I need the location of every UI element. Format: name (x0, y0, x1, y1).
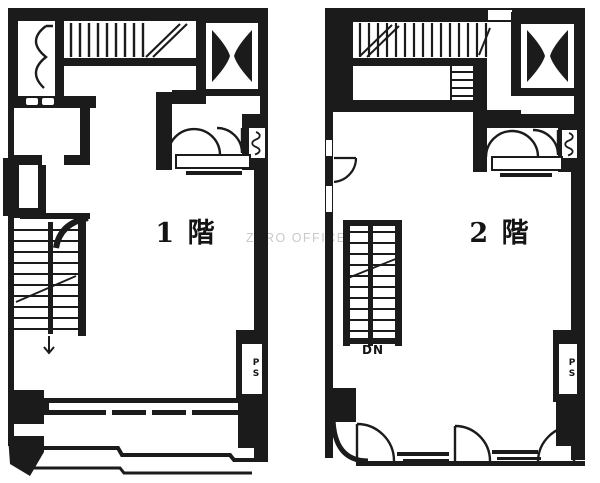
top-staircase-icon (353, 23, 490, 104)
elevator-hall (521, 96, 574, 114)
elevator-icon (511, 12, 585, 96)
pipe-space-label-floor-2: PS (559, 347, 577, 391)
side-door-arc-icon (334, 158, 356, 182)
mid-staircase-icon (343, 220, 402, 346)
elevator-hall (206, 96, 260, 114)
floor-1-label: 1 階 (144, 211, 228, 250)
shaft-symbol-box (249, 128, 265, 158)
floorplan-floor-2 (325, 8, 585, 466)
watermark-text: ZERO OFFICE (246, 231, 347, 245)
bottom-structure (8, 390, 268, 473)
floor-2-label: 2 階 (458, 211, 542, 250)
entrance-door-arcs-icon (486, 130, 562, 177)
entrance-door-arcs-icon (168, 128, 250, 175)
stair-direction-label: DN (351, 343, 395, 357)
mid-staircase-icon (14, 216, 90, 353)
kitchen-fixtures-icon (26, 98, 64, 165)
vestibule-door-icon (36, 26, 53, 88)
pipe-space-label-floor-1: PS (243, 347, 261, 391)
shaft-symbol-box (562, 130, 577, 158)
elevator-icon (196, 12, 268, 98)
bottom-door-arc-icon (357, 424, 574, 461)
floorplan-image: 1 階 2 階 PS PS DN ZERO OFFICE (0, 0, 600, 483)
top-staircase-icon (62, 23, 196, 66)
floorplan-floor-1 (3, 8, 268, 476)
bottom-structure (330, 388, 585, 466)
